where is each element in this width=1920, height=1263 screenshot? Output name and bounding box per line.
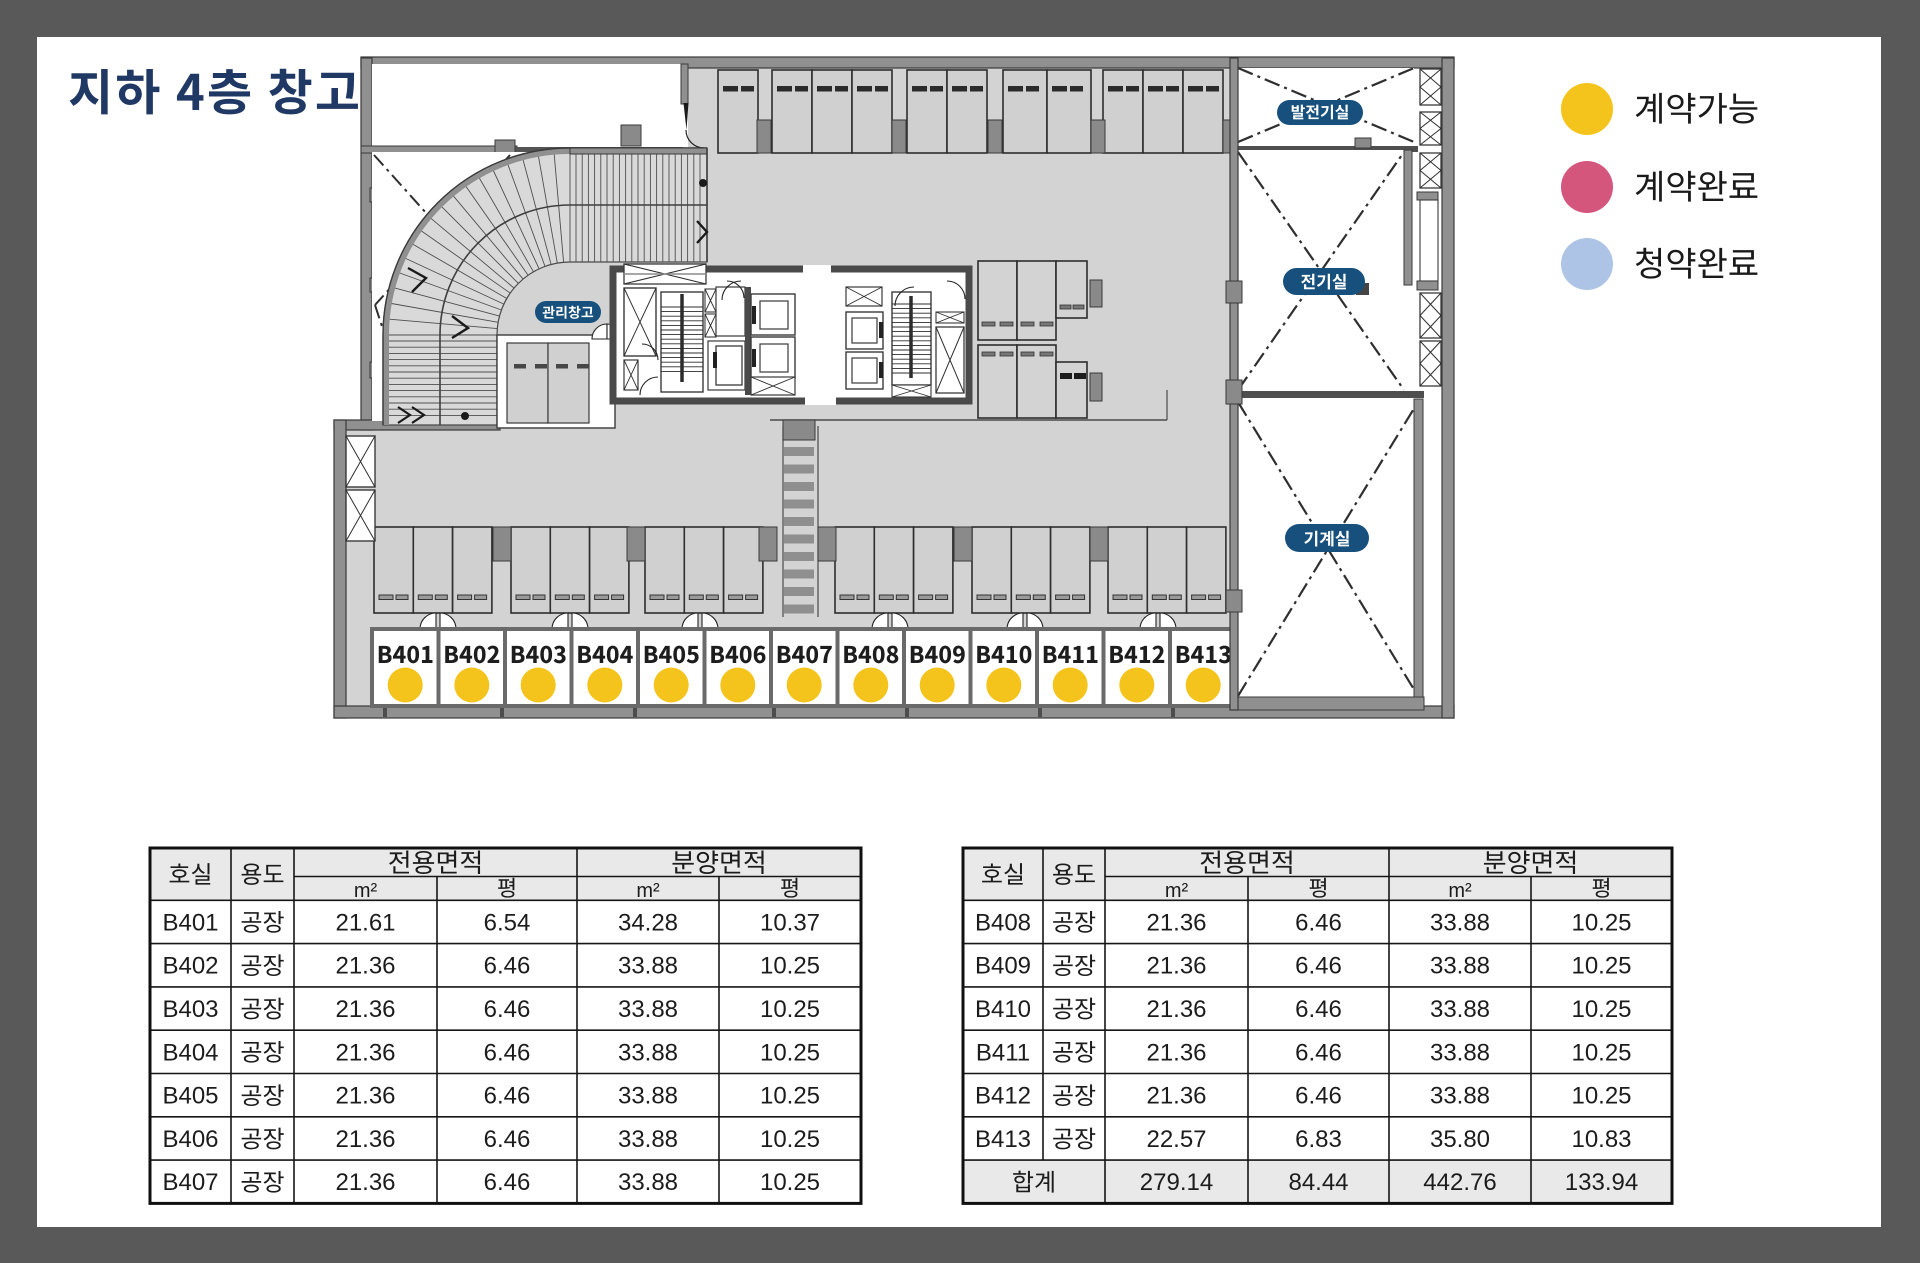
svg-text:33.88: 33.88 [618, 1169, 678, 1196]
svg-text:6.46: 6.46 [484, 1083, 531, 1110]
svg-text:33.88: 33.88 [618, 1126, 678, 1153]
svg-text:33.88: 33.88 [1430, 953, 1490, 980]
svg-text:6.46: 6.46 [1295, 1039, 1342, 1066]
svg-text:m²: m² [1448, 880, 1472, 902]
svg-text:6.46: 6.46 [484, 1039, 531, 1066]
svg-text:10.25: 10.25 [1571, 1083, 1631, 1110]
svg-text:21.36: 21.36 [335, 953, 395, 980]
svg-text:6.83: 6.83 [1295, 1126, 1342, 1153]
svg-text:10.25: 10.25 [760, 1169, 820, 1196]
svg-text:B413: B413 [975, 1126, 1031, 1153]
svg-text:21.36: 21.36 [1146, 909, 1206, 936]
svg-text:6.46: 6.46 [484, 1169, 531, 1196]
svg-text:21.36: 21.36 [335, 996, 395, 1023]
svg-text:10.25: 10.25 [760, 1126, 820, 1153]
svg-text:B402: B402 [162, 953, 218, 980]
svg-text:B411: B411 [976, 1039, 1030, 1066]
svg-text:21.36: 21.36 [1146, 996, 1206, 1023]
svg-text:B401: B401 [162, 909, 218, 936]
svg-text:442.76: 442.76 [1423, 1169, 1496, 1196]
svg-text:279.14: 279.14 [1140, 1169, 1213, 1196]
svg-text:33.88: 33.88 [1430, 1039, 1490, 1066]
svg-text:22.57: 22.57 [1146, 1126, 1206, 1153]
svg-text:21.36: 21.36 [335, 1083, 395, 1110]
svg-text:6.46: 6.46 [484, 996, 531, 1023]
svg-text:21.36: 21.36 [1146, 1083, 1206, 1110]
svg-text:6.46: 6.46 [1295, 909, 1342, 936]
svg-text:33.88: 33.88 [1430, 909, 1490, 936]
svg-text:B406: B406 [162, 1126, 218, 1153]
svg-text:21.36: 21.36 [335, 1169, 395, 1196]
svg-text:10.25: 10.25 [760, 953, 820, 980]
svg-text:33.88: 33.88 [618, 953, 678, 980]
svg-text:10.25: 10.25 [1571, 1039, 1631, 1066]
svg-text:10.25: 10.25 [760, 1039, 820, 1066]
svg-text:10.25: 10.25 [760, 996, 820, 1023]
svg-text:6.46: 6.46 [1295, 996, 1342, 1023]
svg-text:133.94: 133.94 [1565, 1169, 1638, 1196]
svg-text:33.88: 33.88 [618, 996, 678, 1023]
svg-text:10.25: 10.25 [1571, 953, 1631, 980]
svg-text:B409: B409 [975, 953, 1031, 980]
svg-text:21.36: 21.36 [1146, 1039, 1206, 1066]
svg-text:33.88: 33.88 [618, 1083, 678, 1110]
svg-text:B403: B403 [162, 996, 218, 1023]
svg-text:B405: B405 [162, 1083, 218, 1110]
svg-text:m²: m² [354, 880, 378, 902]
svg-text:B412: B412 [975, 1083, 1031, 1110]
svg-text:33.88: 33.88 [1430, 996, 1490, 1023]
svg-text:m²: m² [1165, 880, 1189, 902]
svg-text:6.54: 6.54 [484, 909, 531, 936]
svg-text:21.61: 21.61 [335, 909, 395, 936]
svg-text:10.83: 10.83 [1571, 1126, 1631, 1153]
svg-text:33.88: 33.88 [1430, 1083, 1490, 1110]
svg-text:10.25: 10.25 [1571, 996, 1631, 1023]
svg-text:6.46: 6.46 [484, 1126, 531, 1153]
svg-text:B404: B404 [162, 1039, 218, 1066]
svg-text:84.44: 84.44 [1288, 1169, 1348, 1196]
svg-text:B407: B407 [162, 1169, 218, 1196]
svg-text:m²: m² [636, 880, 660, 902]
svg-text:34.28: 34.28 [618, 909, 678, 936]
svg-text:6.46: 6.46 [1295, 1083, 1342, 1110]
svg-text:10.25: 10.25 [1571, 909, 1631, 936]
svg-text:6.46: 6.46 [1295, 953, 1342, 980]
svg-text:21.36: 21.36 [335, 1039, 395, 1066]
svg-text:10.37: 10.37 [760, 909, 820, 936]
svg-text:B408: B408 [975, 909, 1031, 936]
svg-text:33.88: 33.88 [618, 1039, 678, 1066]
svg-text:6.46: 6.46 [484, 953, 531, 980]
svg-text:35.80: 35.80 [1430, 1126, 1490, 1153]
svg-text:10.25: 10.25 [760, 1083, 820, 1110]
svg-text:21.36: 21.36 [1146, 953, 1206, 980]
svg-text:B410: B410 [975, 996, 1031, 1023]
svg-text:21.36: 21.36 [335, 1126, 395, 1153]
